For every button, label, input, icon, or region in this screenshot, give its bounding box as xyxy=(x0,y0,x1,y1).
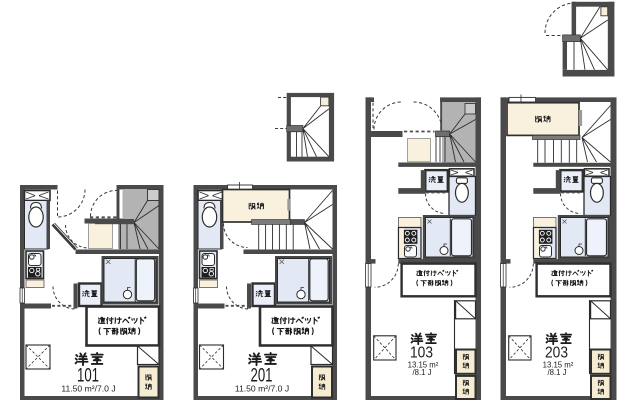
svg-text:103: 103 xyxy=(410,345,433,362)
svg-text:/8.1 J: /8.1 J xyxy=(412,368,431,377)
svg-text:11.50 m²/7.0 J: 11.50 m²/7.0 J xyxy=(235,384,289,394)
svg-text:/8.1 J: /8.1 J xyxy=(547,368,566,377)
svg-text:11.50 m²/7.0 J: 11.50 m²/7.0 J xyxy=(61,384,115,394)
svg-text:203: 203 xyxy=(545,345,568,362)
